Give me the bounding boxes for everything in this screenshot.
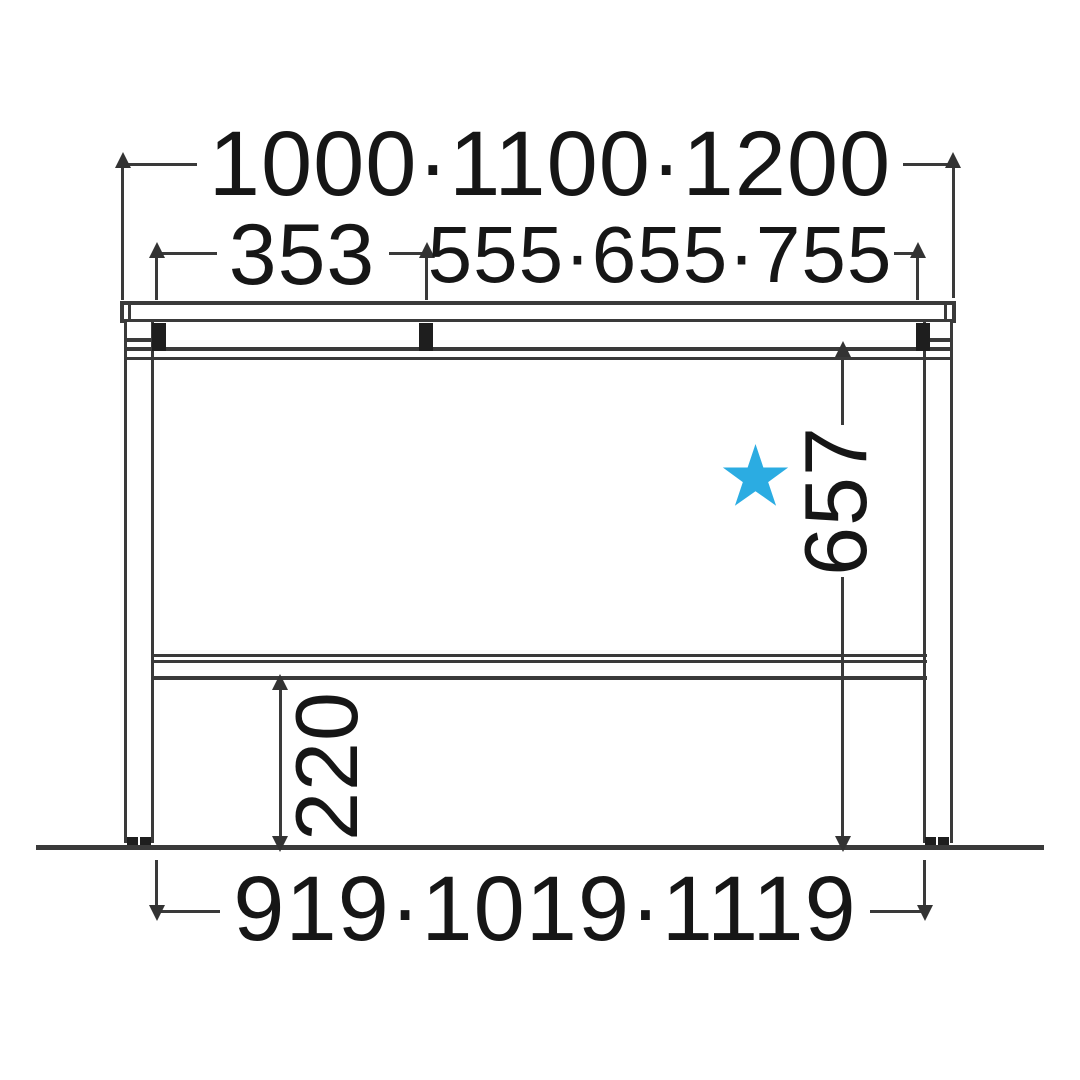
left-leg-joint-tick xyxy=(124,338,155,342)
dim-right-section-label: 555·655·755 xyxy=(428,215,893,295)
shelf-top-edge xyxy=(152,654,927,657)
desktop-left-inner-cap-line xyxy=(128,302,131,322)
dimension-diagram: 1000·1100·1200 353 555·655·755 657 220 9… xyxy=(0,0,1080,1080)
desktop-right-end-cap xyxy=(952,301,956,323)
left-leg-inner-line xyxy=(151,322,154,843)
dim-span-arrow-right xyxy=(917,905,933,921)
dim-width-ext-left xyxy=(121,160,124,300)
dim-height-arrow-bottom xyxy=(835,836,851,852)
rail-left-cap-block xyxy=(152,323,166,351)
dim-span-label: 919·1019·1119 xyxy=(233,863,856,955)
dim-height-label: 657 xyxy=(792,426,880,576)
star-icon xyxy=(722,444,789,508)
dim-left-section-label: 353 xyxy=(229,212,376,298)
dim-rail-height-arrow-top xyxy=(272,674,288,690)
dim-width-arrow-right xyxy=(945,152,961,168)
dim-width-ext-right xyxy=(952,160,955,298)
dim-height-arrow-top xyxy=(835,341,851,357)
right-leg-inner-line xyxy=(923,322,926,843)
left-leg-outer-line xyxy=(124,322,127,843)
desktop-left-end-cap xyxy=(120,301,124,323)
dim-width-arrow-left xyxy=(115,152,131,168)
floor-line xyxy=(36,845,1044,850)
shelf-front-edge xyxy=(152,660,927,663)
right-leg-outer-line xyxy=(950,322,953,843)
dim-span-arrow-left xyxy=(149,905,165,921)
dim-rail-height-label: 220 xyxy=(283,691,371,841)
under-rail-line xyxy=(124,357,953,360)
dim-height-line-lower xyxy=(841,577,844,848)
dim-sections-arrow-right xyxy=(910,242,926,258)
dim-width-label: 1000·1100·1200 xyxy=(209,118,891,210)
rail-bottom-edge xyxy=(124,347,953,351)
desktop-right-inner-cap-line xyxy=(944,302,947,322)
dim-sections-arrow-left xyxy=(149,242,165,258)
desktop-bottom-edge xyxy=(120,319,956,322)
shelf-bottom-edge xyxy=(152,676,927,680)
rail-right-cap-block xyxy=(916,323,930,351)
dim-width-stub-left xyxy=(121,163,197,166)
dim-height-line-upper xyxy=(841,349,844,425)
rail-divider-block xyxy=(419,323,433,351)
